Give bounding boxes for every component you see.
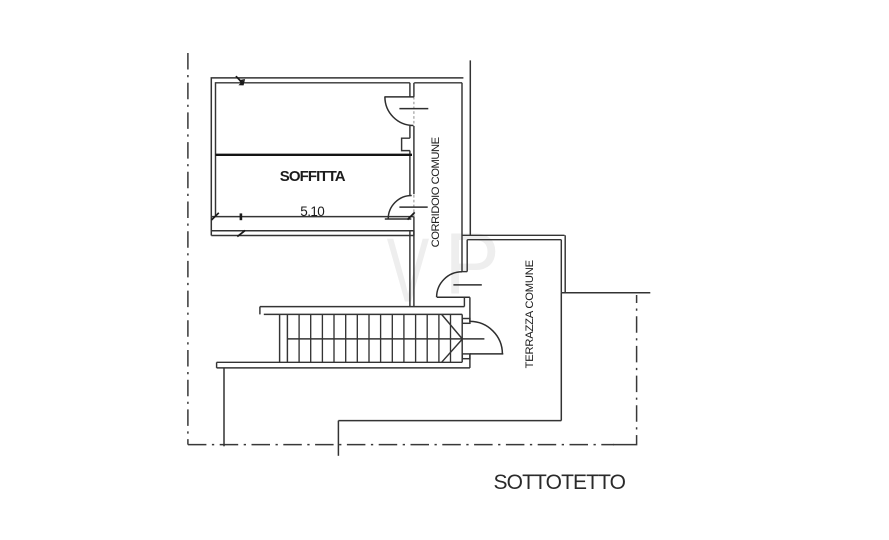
svg-text:5.10: 5.10 bbox=[300, 204, 325, 219]
svg-text:CORRIDOIO COMUNE: CORRIDOIO COMUNE bbox=[430, 137, 442, 248]
svg-text:TERRAZZA COMUNE: TERRAZZA COMUNE bbox=[524, 260, 536, 369]
svg-text:SOTTOTETTO: SOTTOTETTO bbox=[494, 471, 627, 494]
svg-text:SOFFITTA: SOFFITTA bbox=[280, 168, 346, 185]
